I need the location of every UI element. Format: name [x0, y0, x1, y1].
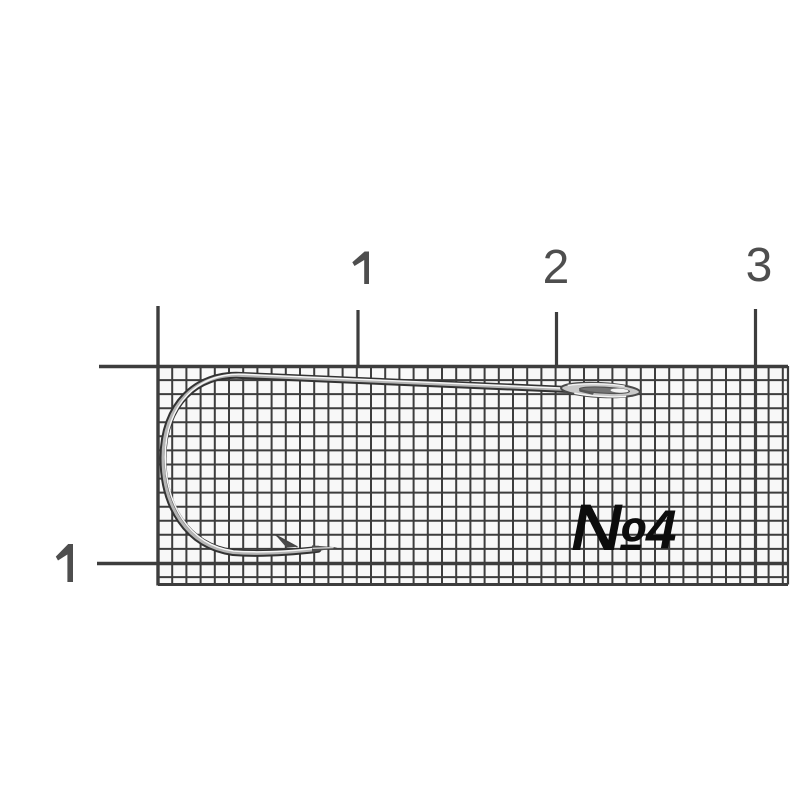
svg-text:4: 4 [645, 498, 677, 560]
svg-text:3: 3 [746, 239, 773, 292]
svg-text:2: 2 [543, 241, 570, 294]
svg-text:№: № [571, 490, 647, 564]
